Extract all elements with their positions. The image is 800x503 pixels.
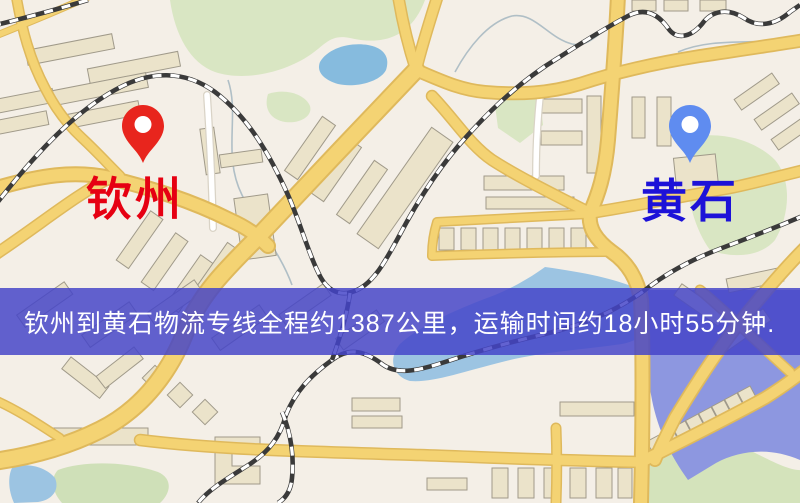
origin-pin-icon[interactable]	[120, 103, 166, 165]
map-screenshot: 钦州 黄石 钦州到黄石物流专线全程约1387公里，运输时间约18小时55分钟.	[0, 0, 800, 503]
origin-label: 钦州	[86, 176, 184, 222]
route-info-banner: 钦州到黄石物流专线全程约1387公里，运输时间约18小时55分钟.	[0, 288, 800, 355]
map-canvas[interactable]	[0, 0, 800, 503]
route-info-text: 钦州到黄石物流专线全程约1387公里，运输时间约18小时55分钟.	[24, 304, 775, 340]
destination-label: 黄石	[641, 178, 739, 224]
destination-pin-icon[interactable]	[667, 103, 713, 165]
